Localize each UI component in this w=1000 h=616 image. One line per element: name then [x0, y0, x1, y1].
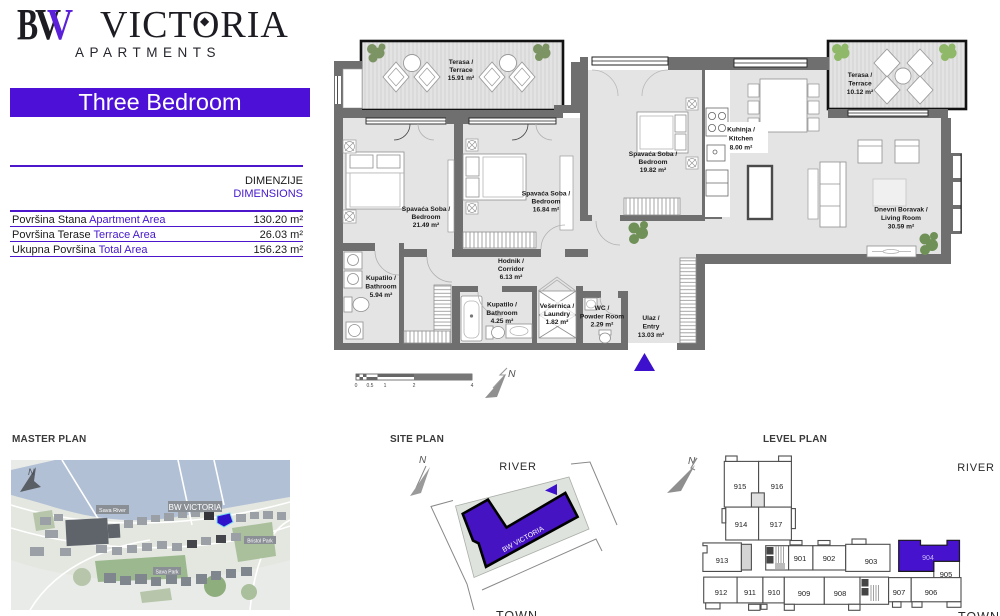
svg-text:RIVER: RIVER [957, 462, 995, 474]
svg-text:Kupatilo /: Kupatilo / [487, 302, 517, 309]
svg-text:Bathroom: Bathroom [486, 310, 517, 317]
svg-text:Spavaća Soba /: Spavaća Soba / [629, 151, 678, 158]
svg-text:Living Room: Living Room [881, 215, 921, 222]
svg-text:Terrace: Terrace [848, 81, 872, 88]
svg-text:19.82 m²: 19.82 m² [640, 167, 667, 174]
svg-text:4: 4 [471, 383, 474, 389]
svg-text:21.49 m²: 21.49 m² [413, 222, 440, 229]
svg-text:Spavaća Soba /: Spavaća Soba / [522, 191, 571, 198]
svg-text:Sava River: Sava River [99, 508, 126, 514]
svg-text:910: 910 [768, 588, 781, 597]
svg-text:Kupatilo /: Kupatilo / [366, 275, 396, 282]
svg-text:904: 904 [922, 555, 934, 562]
svg-text:Bathroom: Bathroom [365, 284, 396, 291]
svg-text:0: 0 [355, 383, 358, 389]
svg-text:Ulaz /: Ulaz / [642, 315, 659, 322]
svg-text:914: 914 [735, 520, 748, 529]
svg-text:Sava Park: Sava Park [155, 570, 179, 576]
svg-text:915: 915 [734, 482, 747, 491]
svg-text:Bristol Park: Bristol Park [247, 539, 273, 545]
svg-text:WC /: WC / [595, 305, 610, 312]
svg-text:909: 909 [798, 589, 811, 598]
svg-text:15.91 m²: 15.91 m² [448, 75, 475, 82]
svg-text:2.29 m²: 2.29 m² [591, 322, 615, 329]
svg-text:8.00 m²: 8.00 m² [730, 145, 754, 152]
svg-text:N: N [508, 368, 516, 380]
svg-text:1: 1 [384, 383, 387, 389]
svg-text:RIVER: RIVER [499, 461, 537, 473]
svg-text:5.94 m²: 5.94 m² [370, 292, 394, 299]
svg-text:N: N [419, 455, 427, 466]
svg-text:Kitchen: Kitchen [729, 136, 753, 143]
svg-text:Bedroom: Bedroom [412, 214, 441, 221]
svg-text:N: N [28, 467, 35, 477]
svg-text:SITE PLAN: SITE PLAN [390, 434, 444, 445]
svg-text:10.12 m²: 10.12 m² [847, 89, 874, 96]
svg-text:LEVEL PLAN: LEVEL PLAN [763, 434, 827, 445]
svg-text:0.5: 0.5 [367, 383, 374, 389]
svg-text:16.84 m²: 16.84 m² [533, 207, 560, 214]
svg-text:916: 916 [771, 482, 784, 491]
svg-text:Spavaća Soba /: Spavaća Soba / [402, 206, 451, 213]
svg-text:903: 903 [865, 557, 878, 566]
svg-text:Terrace: Terrace [449, 67, 473, 74]
svg-text:906: 906 [925, 588, 938, 597]
svg-text:905: 905 [940, 570, 953, 579]
svg-text:Vešernica /: Vešernica / [540, 303, 575, 310]
svg-text:MASTER PLAN: MASTER PLAN [12, 434, 86, 445]
svg-text:912: 912 [715, 588, 728, 597]
svg-text:Laundry: Laundry [544, 311, 570, 318]
svg-text:Corridor: Corridor [498, 266, 525, 273]
svg-text:908: 908 [834, 589, 847, 598]
svg-text:907: 907 [893, 588, 906, 597]
svg-text:Dnevni Boravak /: Dnevni Boravak / [874, 207, 928, 214]
svg-text:Kuhinja /: Kuhinja / [727, 127, 755, 134]
svg-text:2: 2 [413, 383, 416, 389]
svg-text:TOWN: TOWN [496, 609, 538, 616]
svg-text:Bedroom: Bedroom [639, 159, 668, 166]
svg-text:901: 901 [794, 554, 807, 563]
svg-text:913: 913 [716, 556, 729, 565]
svg-text:13.03 m²: 13.03 m² [638, 332, 665, 339]
svg-text:6.13 m²: 6.13 m² [500, 274, 524, 281]
svg-text:BW VICTORIA: BW VICTORIA [169, 503, 222, 512]
svg-text:Hodnik /: Hodnik / [498, 258, 524, 265]
svg-text:902: 902 [823, 554, 836, 563]
svg-text:Bedroom: Bedroom [532, 199, 561, 206]
svg-text:Terasa /: Terasa / [848, 72, 873, 79]
svg-text:TOWN: TOWN [958, 610, 1000, 616]
svg-text:917: 917 [770, 520, 783, 529]
svg-text:4.25 m²: 4.25 m² [491, 318, 515, 325]
svg-text:Terasa /: Terasa / [449, 59, 474, 66]
svg-text:Powder Room: Powder Room [580, 314, 624, 321]
svg-text:Entry: Entry [643, 324, 660, 331]
svg-text:1.82 m²: 1.82 m² [546, 319, 570, 326]
svg-text:911: 911 [744, 588, 756, 597]
svg-text:30.59 m²: 30.59 m² [888, 224, 915, 231]
